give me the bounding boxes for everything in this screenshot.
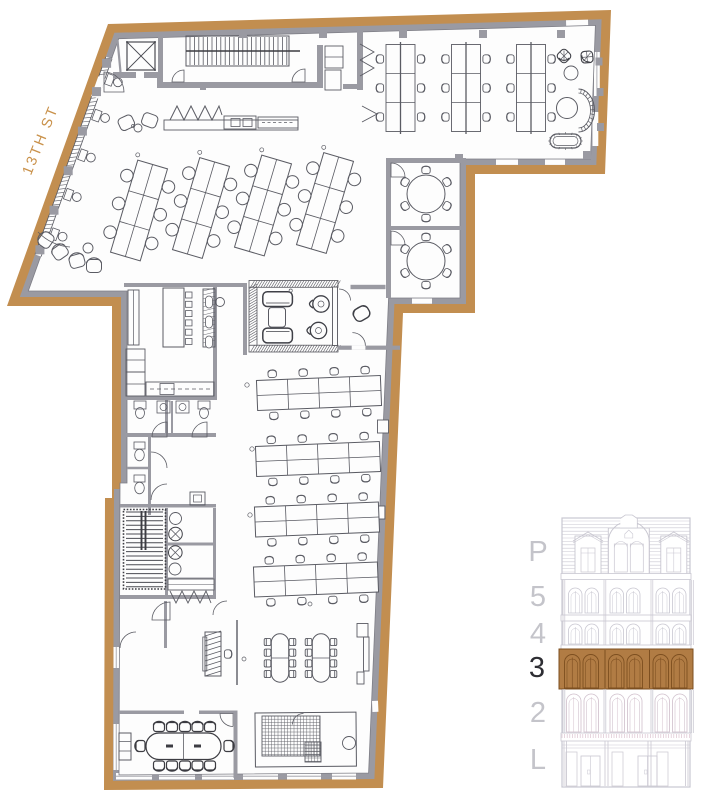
svg-text:5: 5 bbox=[530, 581, 546, 613]
svg-text:P: P bbox=[528, 536, 547, 568]
svg-text:3: 3 bbox=[529, 652, 545, 684]
svg-text:2: 2 bbox=[530, 697, 546, 729]
svg-text:L: L bbox=[530, 744, 546, 776]
svg-text:4: 4 bbox=[530, 618, 546, 650]
